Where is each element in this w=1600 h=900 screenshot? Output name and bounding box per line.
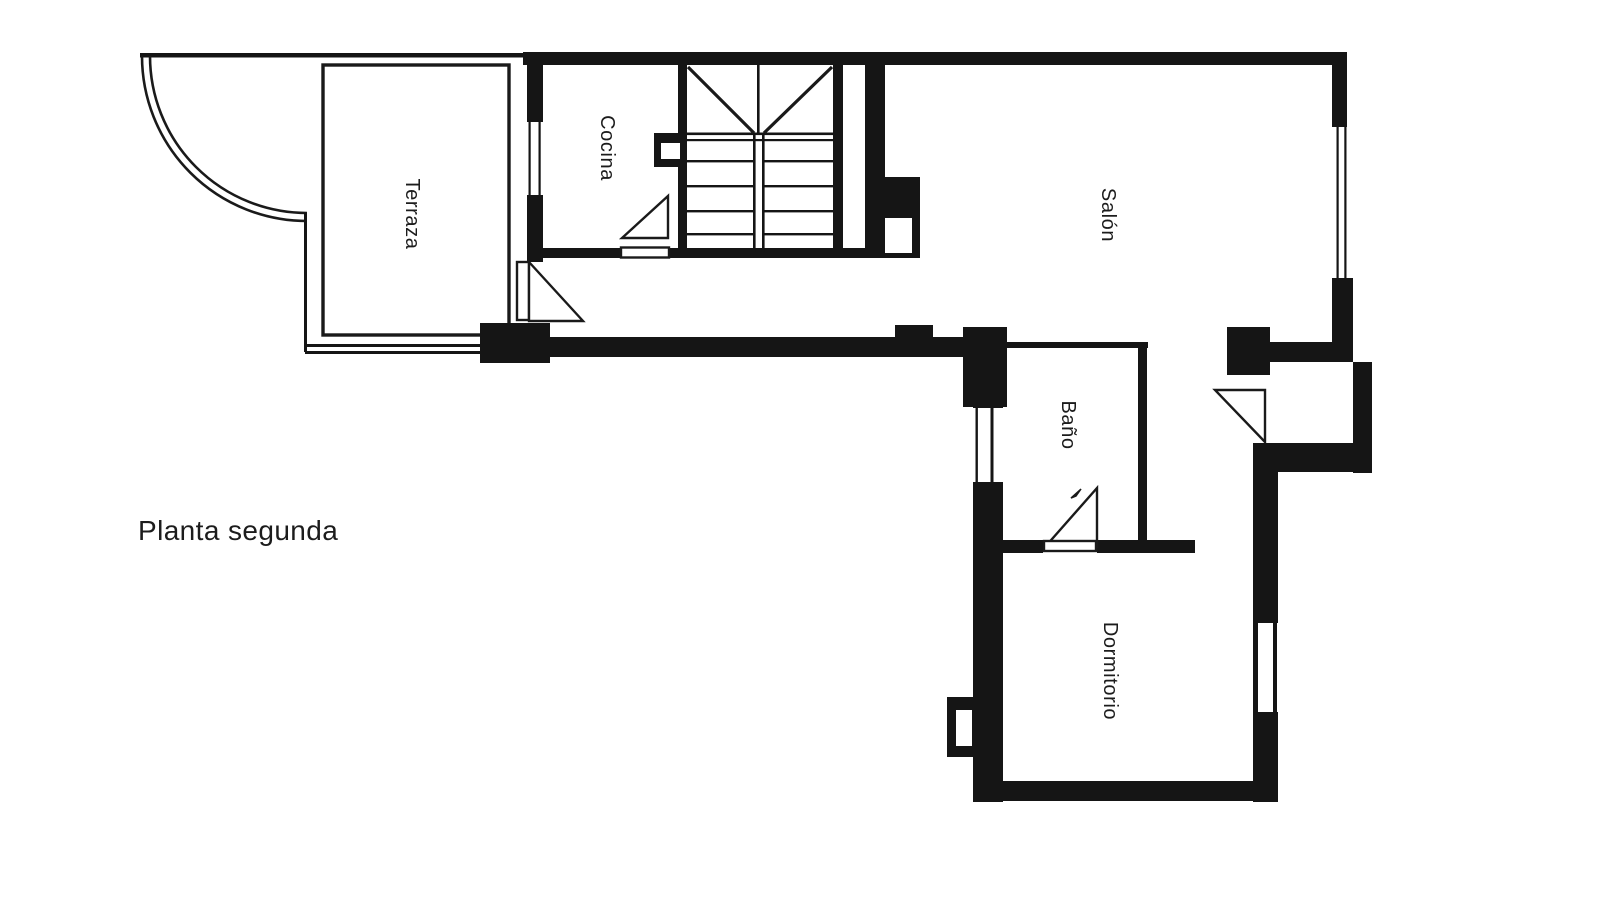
stair-divider-right-line [762, 133, 765, 252]
salon-right-wall-upper [1332, 52, 1347, 127]
cocina-left-wall-upper [527, 53, 543, 122]
cocina-door-swing [622, 196, 668, 238]
window-glazing-line [1337, 127, 1339, 278]
stair-tread [687, 233, 754, 235]
bano-door-swing [1045, 488, 1097, 547]
bano-right-wall [1138, 342, 1147, 540]
bano-window [976, 408, 994, 482]
stair-treads [687, 160, 833, 235]
window-glazing-line [991, 408, 994, 482]
stair-tread [763, 185, 833, 187]
cocina-structure [527, 53, 920, 262]
terraza-label: Terraza [401, 179, 423, 250]
terraza-structure [140, 53, 527, 354]
stair-tread [687, 210, 754, 212]
bano-door-leaf [1044, 541, 1096, 551]
hallway-south-wall [480, 323, 1007, 407]
stair-divider-left-line [753, 133, 756, 252]
bano-door-tick [1071, 489, 1081, 498]
stair-diagonal-right [764, 67, 832, 133]
entry-door-swing [1215, 390, 1265, 442]
terraza-outer-top-wall [140, 53, 527, 58]
hallway-wall-block-west [480, 323, 550, 363]
cocina-door [621, 196, 669, 258]
bano-dormitorio-left-wall [973, 482, 1003, 802]
cocina-stairs-bottom-wall [528, 248, 920, 258]
dormitorio-window [1253, 623, 1277, 712]
stair-landing-edge [687, 133, 833, 136]
dormitorio-right-wall-lower [1253, 712, 1278, 802]
stair-diagonal-left [688, 67, 754, 133]
stair-right-wall [833, 65, 843, 257]
salon-label: Salón [1097, 188, 1119, 242]
terraza-door-swing [529, 262, 583, 321]
plan-title: Planta segunda [138, 515, 338, 546]
hallway-wall-block-mid [895, 325, 933, 357]
salon-window [1337, 127, 1347, 278]
bano-label: Baño [1057, 400, 1079, 449]
terraza-outer-bottom-wall-2 [305, 351, 491, 354]
bano-door [1044, 488, 1097, 551]
salon-right-wall-lower [1332, 278, 1353, 362]
bano-bottom-wall-east [1097, 540, 1195, 553]
entry-wall-block [1227, 327, 1270, 375]
terraza-door-leaf [517, 262, 529, 320]
window-glazing-line [529, 122, 531, 195]
staircase [654, 65, 843, 258]
dormitorio-wall-bump-notch [956, 710, 972, 746]
floorplan-svg: Terraza Cocina Salón Baño Dormitorio Pla… [0, 0, 1600, 900]
bano-left-wall-upper [973, 327, 1003, 408]
terraza-curved-wall-outer [142, 56, 307, 221]
stair-tread [763, 233, 833, 235]
floorplan-canvas: Terraza Cocina Salón Baño Dormitorio Pla… [0, 0, 1600, 900]
window-glazing-line [1273, 623, 1277, 712]
cocina-door-leaf [621, 248, 669, 258]
terraza-outer-left-wall [304, 213, 307, 352]
dormitorio-right-wall-upper [1253, 443, 1278, 623]
window-glazing-line [539, 122, 541, 195]
window-glazing-line [1253, 623, 1258, 712]
stair-landing-bracket-notch [661, 143, 680, 159]
dormitorio-bottom-wall [973, 781, 1278, 801]
salon-left-wall-block-notch [885, 218, 912, 253]
stair-tread [763, 210, 833, 212]
terraza-outer-bottom-wall-1 [305, 344, 488, 347]
bano-bottom-wall-west [1003, 540, 1043, 553]
stair-tread [763, 160, 833, 162]
stair-center-top-line [757, 65, 760, 135]
bano-top-wall [1003, 342, 1148, 348]
window-glazing-line [1344, 127, 1346, 278]
stair-tread [687, 160, 754, 162]
terraza-curved-wall-inner [150, 56, 307, 213]
entry-wall-bar [1270, 342, 1333, 362]
exterior-walls [523, 52, 1347, 65]
top-exterior-wall [523, 52, 1347, 65]
dormitorio-label: Dormitorio [1099, 622, 1121, 720]
cocina-window [529, 122, 541, 195]
window-glazing-line [976, 408, 978, 482]
salon-left-wall [865, 65, 885, 257]
stair-landing-edge-2 [687, 139, 833, 141]
stair-tread [687, 185, 754, 187]
cocina-label: Cocina [596, 115, 618, 181]
terraza-door [517, 262, 583, 321]
